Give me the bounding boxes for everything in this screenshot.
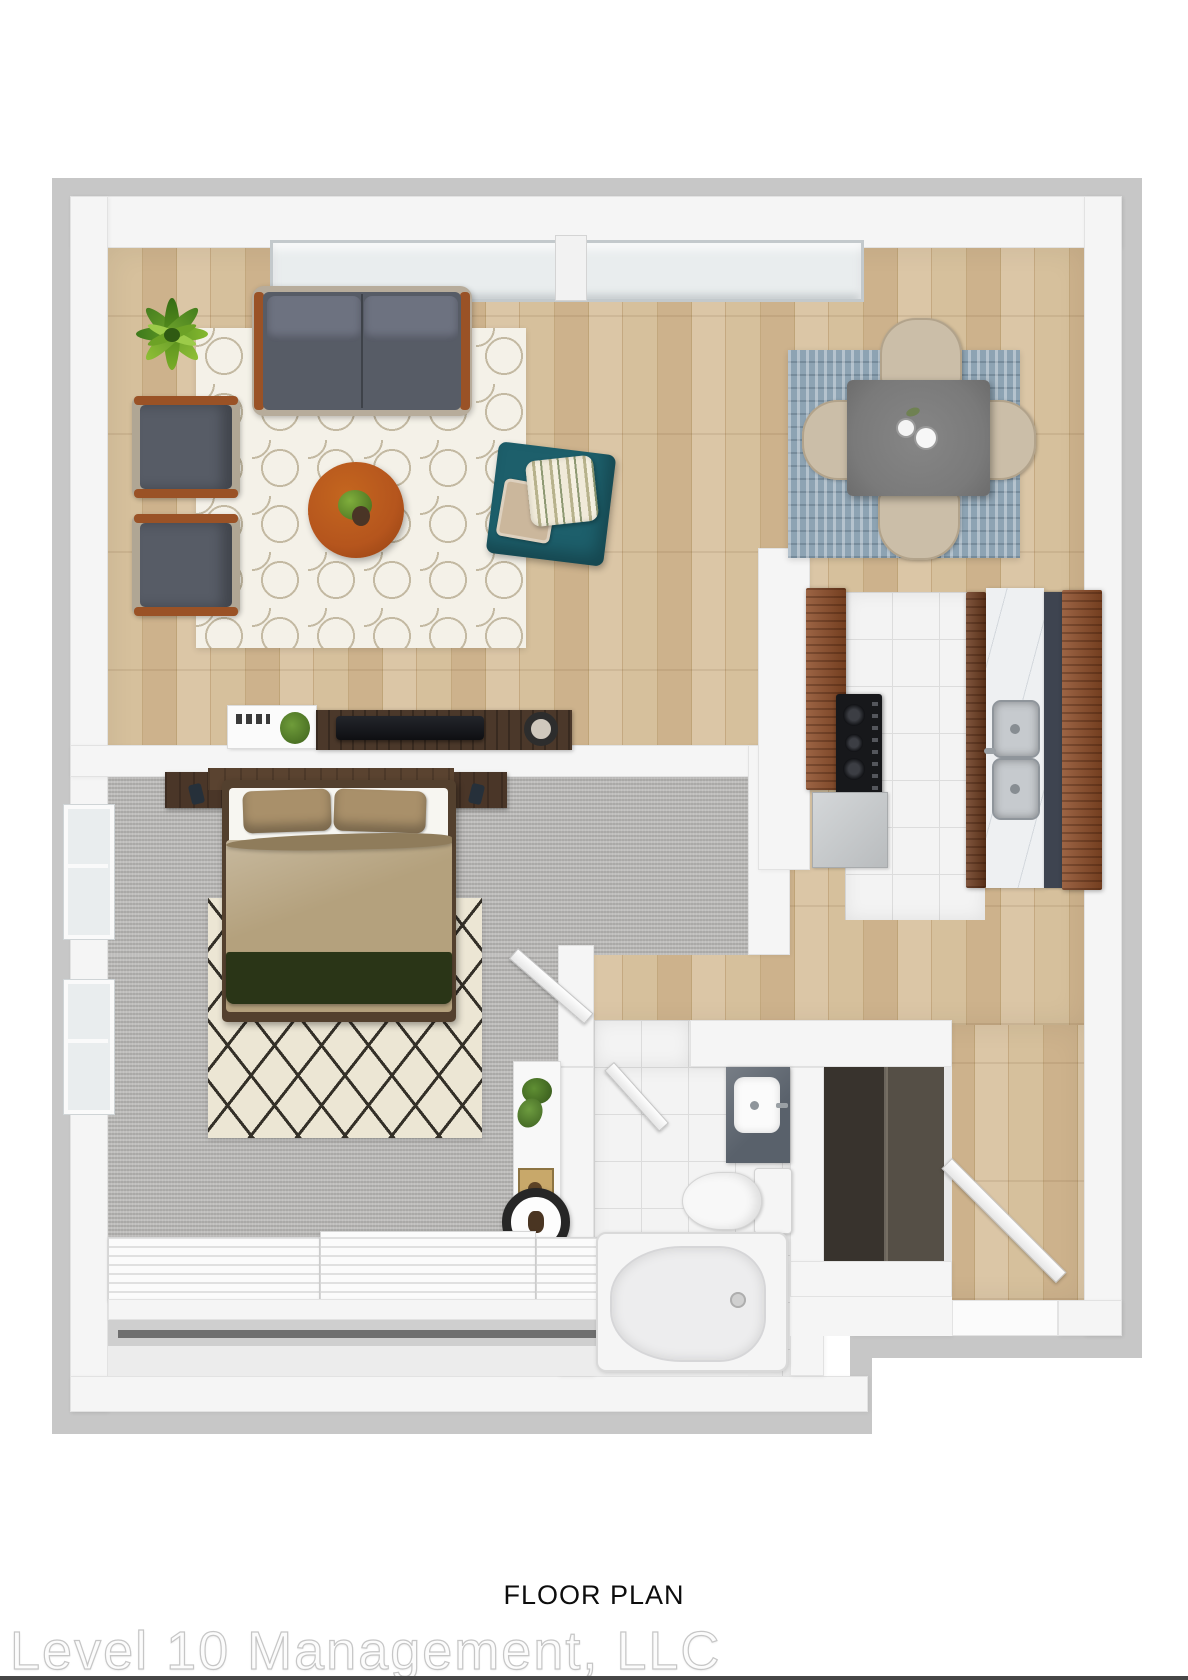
speaker: [524, 712, 558, 746]
coffee-table: [308, 462, 404, 558]
glass-door-mullion: [556, 236, 586, 300]
wall-left: [70, 196, 108, 1412]
dishwasher: [812, 792, 888, 868]
closet-door-middle: [320, 1231, 536, 1301]
bedroom-window-2: [64, 980, 114, 1114]
console-plant-tall: [516, 1072, 556, 1134]
armchair-1: [132, 396, 240, 498]
table-cup-1: [898, 420, 914, 436]
outer-shadow-bottom-left: [52, 1412, 868, 1434]
striped-pillow: [525, 455, 600, 528]
console-plant: [280, 712, 310, 744]
refrigerator-panel: [1044, 592, 1062, 888]
kitchen-faucet: [984, 748, 996, 754]
kitchen-cabinet-right-edge: [966, 592, 986, 888]
wall-below-closet: [790, 1297, 952, 1336]
bed-pillow-left: [242, 788, 331, 833]
floor-plan-page: FLOOR PLAN Level 10 Management, LLC: [0, 0, 1188, 1680]
bed: [222, 780, 456, 1022]
stove: [836, 694, 882, 798]
armchair-2: [132, 514, 240, 616]
wall-bottom-entry-b: [1058, 1300, 1122, 1336]
closet-door-left: [108, 1237, 320, 1301]
vanity-faucet: [776, 1103, 788, 1108]
entry-door-threshold: [952, 1300, 1058, 1336]
closet-sliding-panel-left: [824, 1067, 886, 1261]
kitchen-sink-basin-top: [992, 700, 1040, 758]
palm-plant: [122, 284, 222, 384]
closet-sliding-panel-right: [886, 1067, 946, 1261]
outer-shadow-bottom-right: [850, 1336, 1142, 1358]
dining-chair-bottom: [878, 490, 960, 560]
watermark: Level 10 Management, LLC: [10, 1620, 721, 1680]
bathtub: [596, 1232, 788, 1372]
table-cup-2: [916, 428, 936, 448]
floor-tile-bath-threshold: [594, 1020, 690, 1067]
tv: [336, 716, 484, 740]
sofa-back-cushion: [364, 296, 458, 342]
wall-closet-bottom: [790, 1261, 952, 1297]
bedroom-window-1: [64, 805, 114, 939]
dining-chair-top: [880, 318, 962, 388]
sofa-back-cushion: [267, 296, 361, 342]
bed-pillow-right: [333, 788, 426, 833]
toilet-bowl: [682, 1172, 762, 1230]
wall-bottom-left: [70, 1376, 868, 1412]
bedroom-window-1-divider: [66, 864, 108, 868]
bedroom-window-2-divider: [66, 1039, 108, 1043]
outer-shadow-right: [1120, 178, 1142, 1358]
wall-kitchen-left: [758, 548, 810, 870]
sofa-arm-right: [460, 292, 470, 410]
console-decor-items: [236, 714, 270, 724]
wall-bath-top: [690, 1020, 952, 1067]
floor-plan-caption: FLOOR PLAN: [0, 1580, 1188, 1611]
toilet: [682, 1166, 790, 1236]
throw-blanket-green: [226, 952, 452, 1004]
kitchen-cabinet-right: [1062, 590, 1102, 890]
bottom-border-line: [0, 1676, 1188, 1680]
bathroom-vanity: [726, 1067, 790, 1163]
entry-closet-interior: [824, 1067, 944, 1261]
sofa: [252, 286, 472, 416]
kitchen-sink-basin-bottom: [992, 758, 1040, 820]
bathtub-drain: [730, 1292, 746, 1308]
